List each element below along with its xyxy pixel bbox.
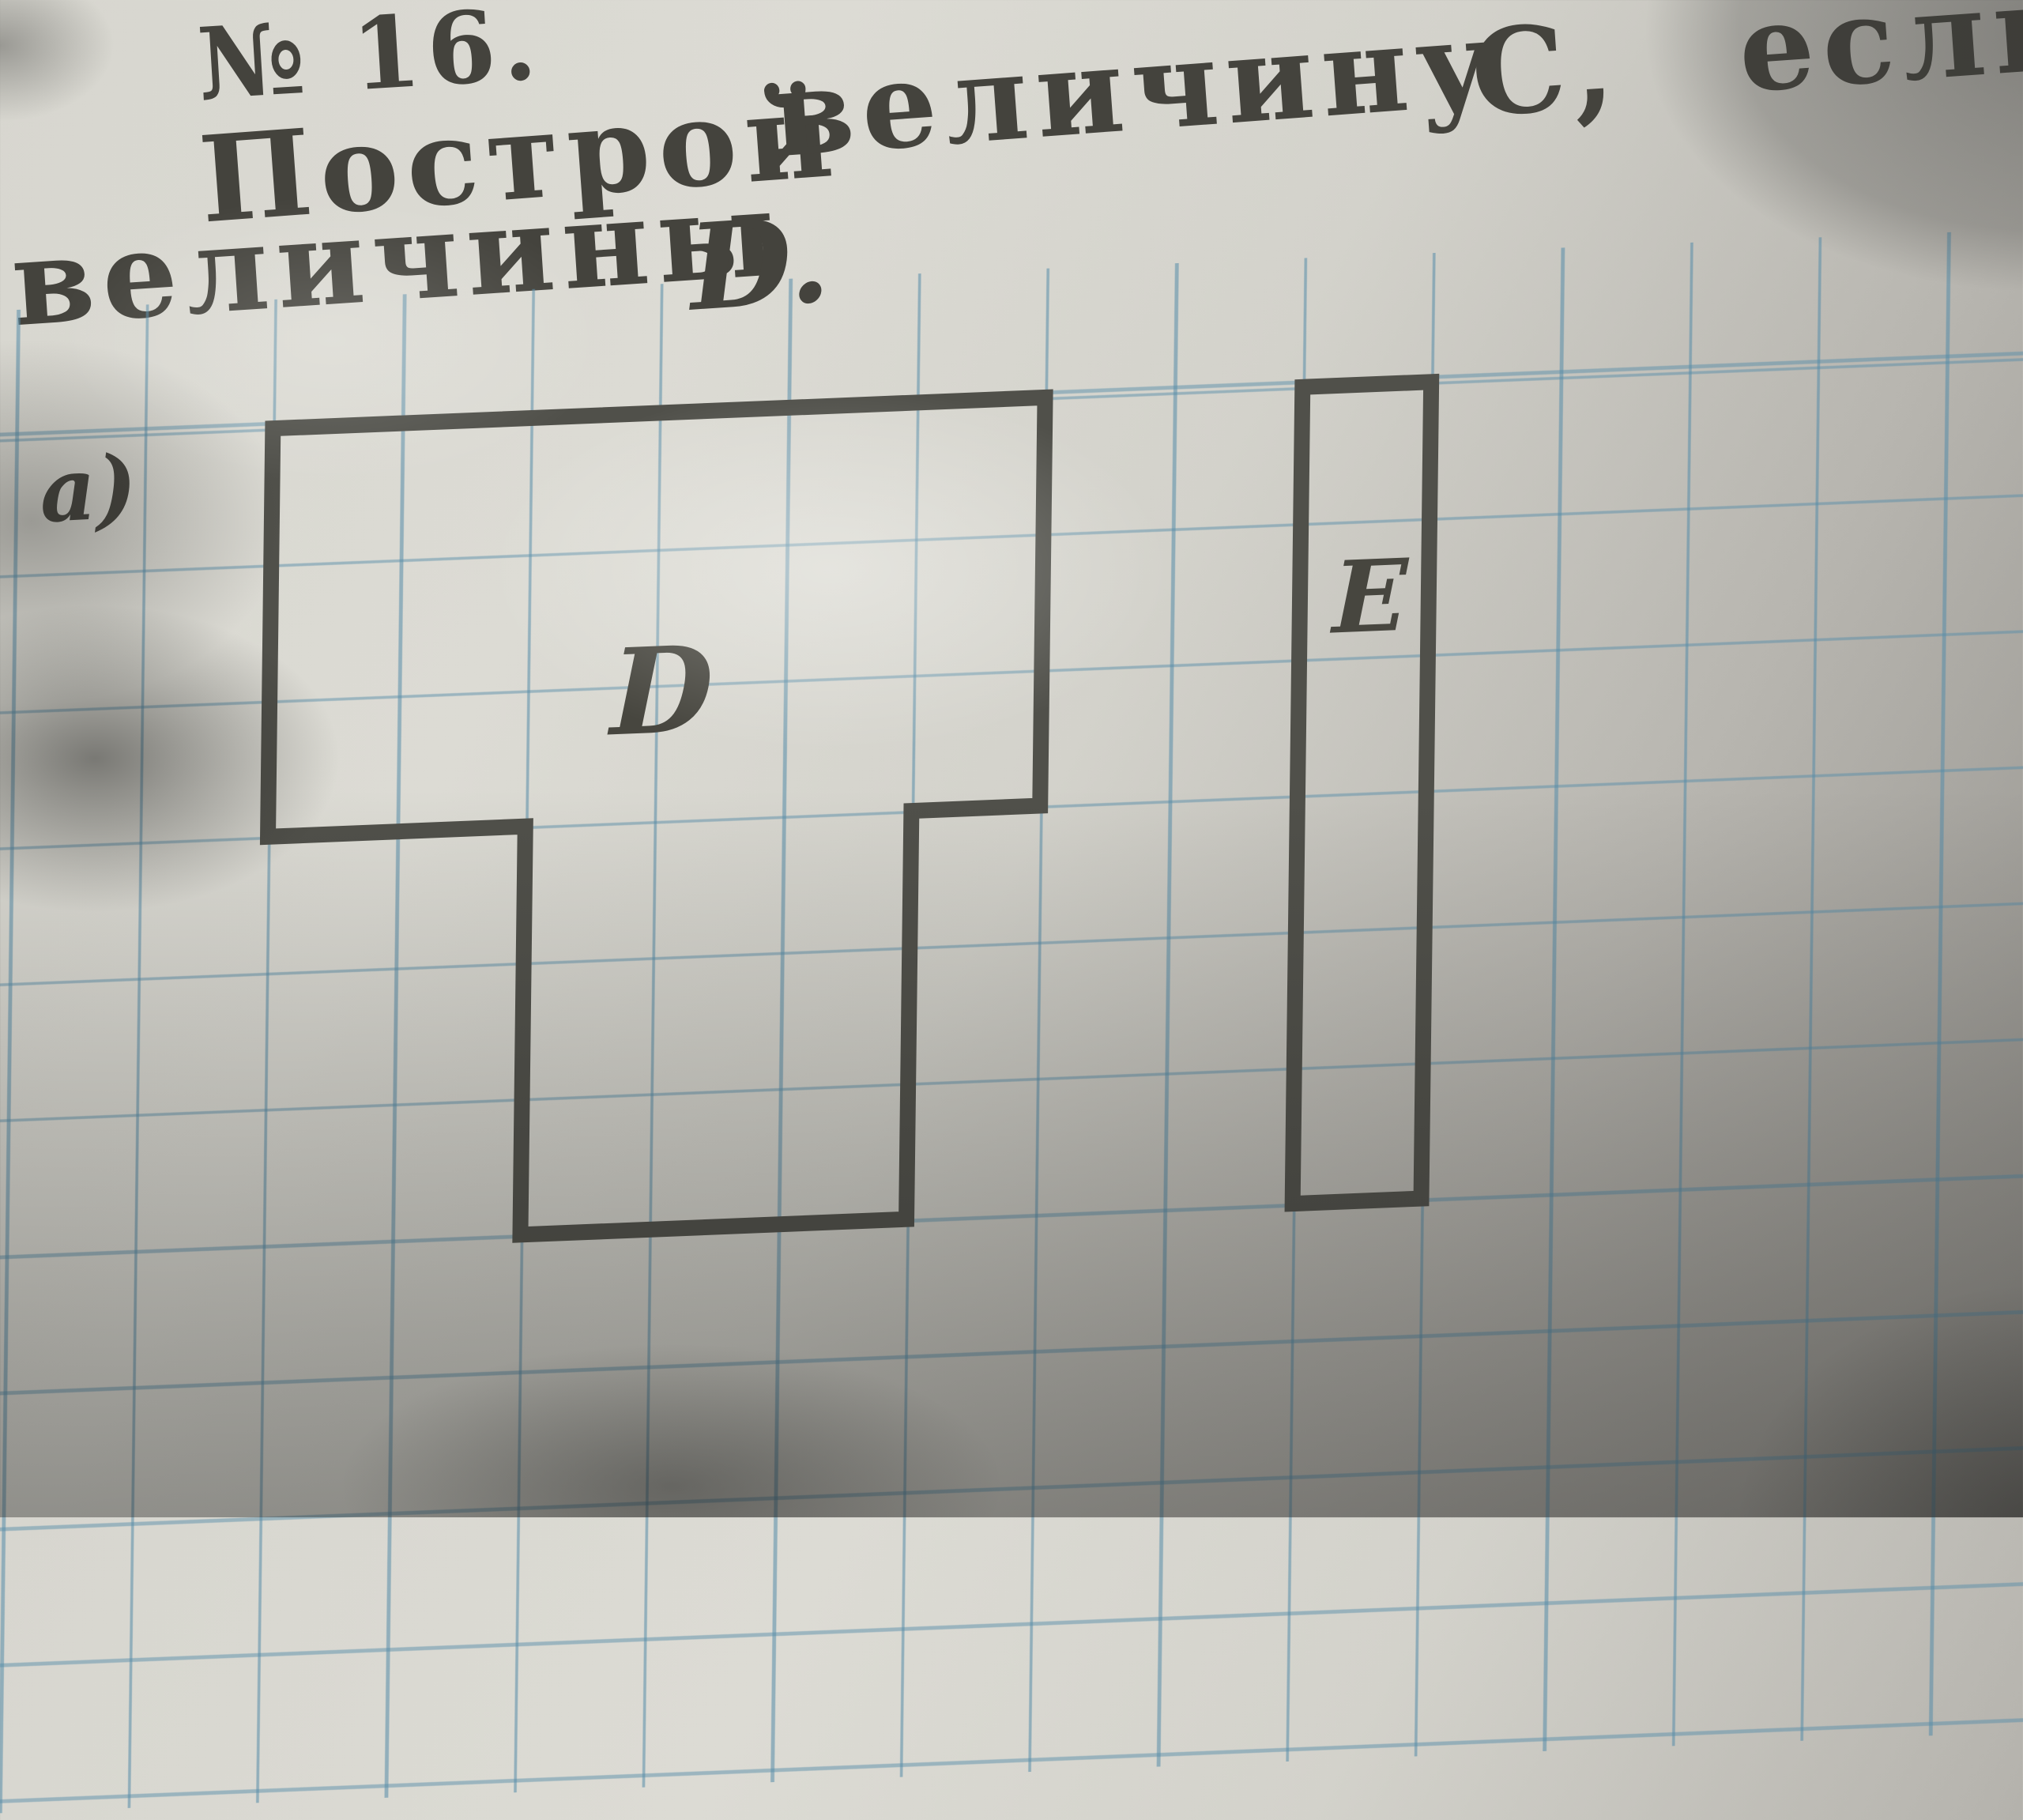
task-word-c: С, (1467, 6, 1624, 134)
figure-e-label: E (1329, 538, 1410, 657)
figure-d-label: D (607, 620, 714, 763)
photographed-workbook-page: { "header": { "problem_number": "№ 16.",… (0, 0, 2023, 1517)
figure-d-outline (263, 398, 1045, 1245)
figure-e-outline (1293, 382, 1431, 1204)
graph-paper-grid: D E (0, 215, 2023, 1820)
task-word-esli: если (1735, 0, 2023, 109)
figures-layer: D E (0, 215, 2023, 1820)
task-word-velichinu: величину (767, 2, 1504, 174)
